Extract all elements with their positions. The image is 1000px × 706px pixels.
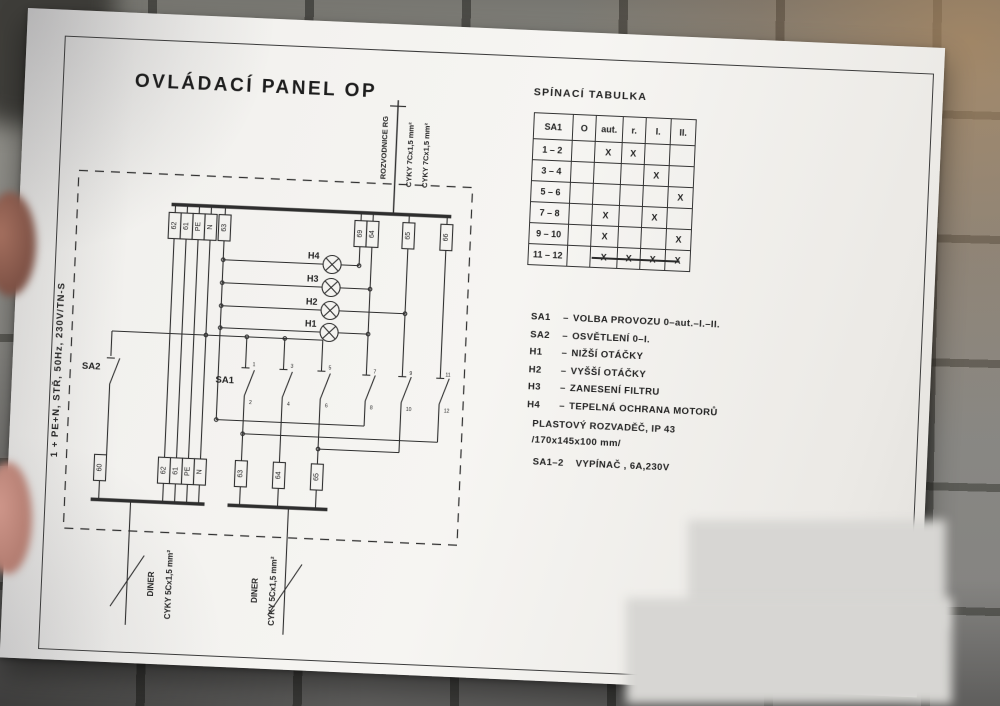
top-cable-label-1: CYKY 7Cx1,5 mm²: [404, 122, 416, 188]
cable-name: DINER: [146, 571, 156, 596]
terminal-strip-top-right: 69 64 65 66: [354, 212, 453, 250]
cable-spec: CYKY 5Cx1,5 mm²: [267, 556, 279, 626]
terminal-label: 69: [357, 230, 364, 238]
terminal-label: PE: [184, 466, 191, 476]
terminal-label: 65: [313, 473, 320, 481]
contact-number: 3: [290, 364, 293, 370]
cable-spec: CYKY 5Cx1,5 mm²: [163, 550, 175, 620]
rozvodnice-label: ROZVODNICE RG: [378, 116, 390, 180]
terminal-strip-top-left: 62 61 PE N 63: [168, 204, 231, 241]
wire-bundle: [165, 239, 225, 460]
terminal-label: PE: [195, 222, 202, 232]
contact-number: 7: [373, 369, 376, 375]
terminal-label: 60: [96, 463, 103, 471]
supply-system-label: 1 + PE+N, STŘ, 50Hz, 230V/TN-S: [48, 282, 68, 458]
terminal-label: 61: [183, 222, 190, 230]
lamp-h4-label: H4: [308, 250, 320, 260]
cable-drop-1: DINER CYKY 5Cx1,5 mm²: [109, 500, 177, 627]
terminal-label: 64: [369, 230, 376, 238]
terminal-label: 62: [171, 221, 178, 229]
lamp-h2-label: H2: [306, 296, 318, 306]
sa2-switch: SA2: [78, 328, 323, 464]
bottom-bus-right: [228, 505, 328, 509]
sa2-label: SA2: [82, 361, 101, 373]
contact-number: 6: [325, 403, 328, 409]
lamp-h3-label: H3: [307, 273, 319, 283]
terminal-label: N: [196, 469, 203, 474]
lamp-h3: H3: [220, 270, 372, 299]
sa1-label: SA1: [215, 375, 235, 387]
terminal-label: 65: [405, 232, 412, 240]
contact-number: 1: [253, 362, 256, 368]
contact-number: 11: [445, 373, 451, 379]
sa1-switch-bank: SA1 1 3 5 7 9: [212, 336, 452, 470]
cable-drop-2: DINER CYKY 5Cx1,5 mm²: [248, 506, 304, 635]
terminal-label: 61: [172, 467, 179, 475]
contact-number: 12: [444, 409, 450, 415]
photo-scene: OVLÁDACÍ PANEL OP SPÍNACÍ TABULKA SA1 O …: [0, 0, 1000, 706]
lamp-h1-label: H1: [305, 318, 317, 328]
terminal-label: 63: [237, 470, 244, 478]
terminal-label: N: [207, 224, 214, 229]
cable-name: DINER: [250, 578, 260, 603]
contact-number: 5: [328, 365, 331, 371]
panel-enclosure-dashed-border: [63, 170, 472, 545]
contact-number: 10: [406, 407, 412, 413]
contact-number: 9: [409, 371, 412, 377]
contact-number: 4: [287, 402, 290, 408]
lamp-h4: H4: [221, 247, 361, 275]
blur-patch-2: [626, 598, 952, 704]
terminal-label: 66: [443, 233, 450, 241]
bottom-bus-left: [91, 499, 205, 504]
contact-number: 8: [370, 405, 373, 411]
contact-number: 2: [249, 400, 252, 406]
terminal-label: 63: [221, 224, 228, 232]
top-cable-label-2: CYKY 7Cx1,5 mm²: [420, 122, 432, 188]
terminal-label: 62: [160, 466, 167, 474]
terminal-label: 64: [275, 471, 282, 479]
